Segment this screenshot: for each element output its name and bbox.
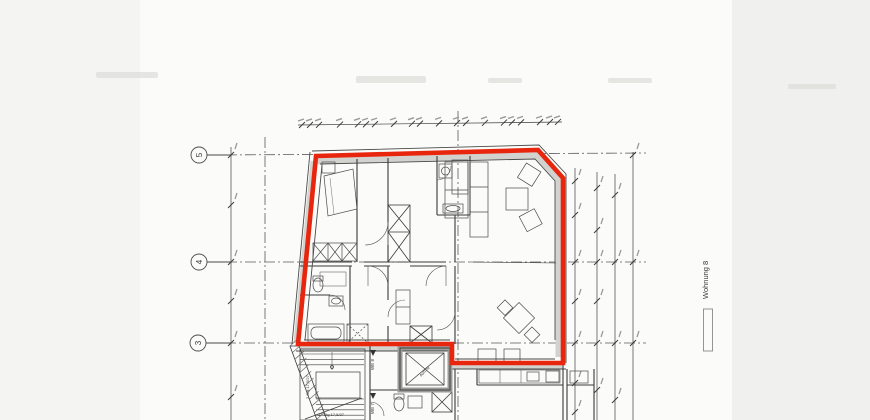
grid-row-label-5: 5 bbox=[195, 152, 204, 157]
apartment-label: Wohnung 8 bbox=[701, 261, 710, 299]
apartment-outline-red bbox=[298, 150, 563, 363]
grid-bubbles bbox=[190, 147, 231, 351]
grid-row-label-4: 4 bbox=[195, 259, 204, 264]
grid-row-label-3: 3 bbox=[194, 340, 203, 345]
unit-marker-we7: WE 7 bbox=[370, 403, 375, 414]
floor-plan-drawing: 5 4 3 bbox=[0, 0, 870, 420]
right-annotation: Wohnung 8 bbox=[701, 261, 713, 351]
floor-plan-scan: 5 4 3 bbox=[0, 0, 870, 420]
legend-box bbox=[704, 309, 713, 351]
entry-arrow-icon bbox=[370, 393, 376, 399]
elevator: Aufzug bbox=[400, 348, 450, 390]
unit-entry-markers: WE 8 WE 7 bbox=[370, 350, 376, 414]
exterior-wall-bands bbox=[297, 155, 562, 366]
entry-arrow-icon bbox=[370, 350, 376, 356]
grid-bubble-labels: 5 4 3 bbox=[194, 152, 204, 345]
elevator-label: Aufzug bbox=[418, 365, 430, 378]
stair-note-left: 2 Stg 17,5/27 bbox=[305, 374, 310, 399]
unit-marker-we8: WE 8 bbox=[370, 359, 375, 370]
